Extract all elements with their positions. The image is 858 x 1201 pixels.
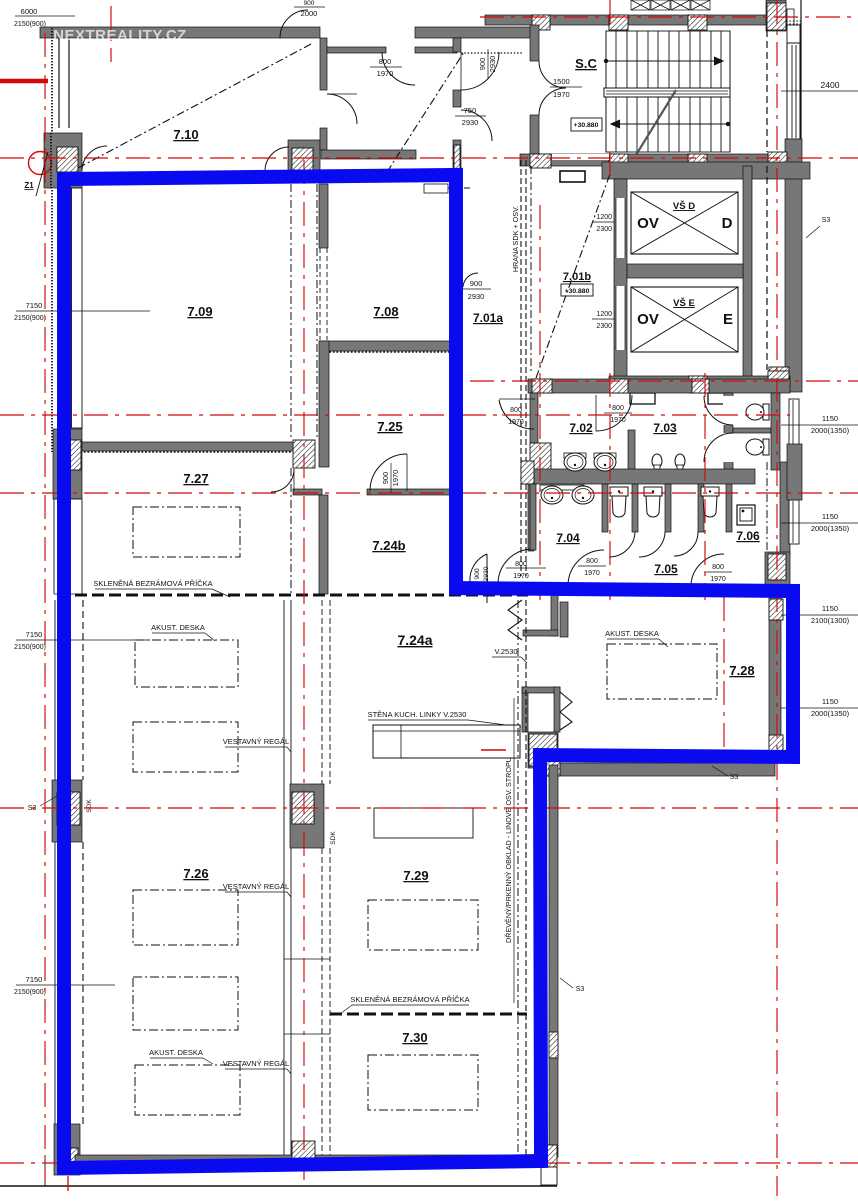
svg-text:800: 800: [712, 564, 724, 571]
svg-text:900: 900: [470, 279, 483, 288]
svg-text:SKLENĚNÁ BEZRÁMOVÁ PŘÍČKA: SKLENĚNÁ BEZRÁMOVÁ PŘÍČKA: [93, 579, 212, 588]
svg-text:+30.880: +30.880: [565, 288, 590, 295]
svg-text:1500: 1500: [553, 77, 570, 86]
svg-text:VŠ E: VŠ E: [673, 297, 695, 309]
svg-text:7.09: 7.09: [187, 304, 212, 319]
svg-text:7.02: 7.02: [569, 421, 593, 435]
svg-text:7.01b: 7.01b: [563, 271, 591, 283]
svg-text:AKUST. DESKA: AKUST. DESKA: [149, 1048, 203, 1057]
svg-text:NEXTREALITY.CZ: NEXTREALITY.CZ: [53, 27, 187, 44]
svg-text:VESTAVNÝ REGÁL: VESTAVNÝ REGÁL: [223, 882, 289, 891]
svg-text:DŘEVĚNÝ/PRKENNÝ OBKLAD - LINOV: DŘEVĚNÝ/PRKENNÝ OBKLAD - LINOVÉ OSV. STR…: [504, 757, 513, 943]
svg-text:7.30: 7.30: [402, 1030, 427, 1045]
svg-text:2930: 2930: [468, 292, 485, 301]
svg-text:6000: 6000: [21, 7, 38, 16]
svg-text:1150: 1150: [822, 512, 838, 521]
svg-text:7.24b: 7.24b: [372, 538, 405, 553]
svg-text:OV: OV: [637, 311, 659, 328]
svg-text:1970: 1970: [391, 470, 400, 487]
svg-text:2930: 2930: [483, 566, 490, 581]
svg-text:7150: 7150: [26, 630, 43, 639]
svg-text:2150(900): 2150(900): [14, 21, 46, 28]
svg-text:1970: 1970: [584, 570, 600, 577]
svg-text:7.04: 7.04: [556, 531, 580, 545]
svg-text:7.26: 7.26: [183, 866, 208, 881]
svg-text:SDK: SDK: [330, 831, 337, 845]
svg-text:1970: 1970: [710, 576, 726, 583]
svg-text:1970: 1970: [377, 69, 394, 78]
svg-text:900: 900: [478, 58, 487, 71]
svg-text:900: 900: [381, 472, 390, 485]
svg-text:S3: S3: [822, 217, 831, 224]
svg-text:VŠ D: VŠ D: [673, 200, 695, 212]
svg-text:7.03: 7.03: [653, 421, 677, 435]
svg-text:7.25: 7.25: [377, 419, 402, 434]
svg-text:7.05: 7.05: [654, 562, 678, 576]
svg-text:Z1: Z1: [24, 181, 34, 190]
svg-text:900: 900: [304, 0, 315, 7]
svg-text:800: 800: [510, 407, 522, 414]
svg-text:2150(900): 2150(900): [14, 989, 46, 996]
svg-text:900: 900: [474, 568, 481, 580]
svg-text:STĚNA KUCH. LINKY V.2530: STĚNA KUCH. LINKY V.2530: [368, 710, 467, 719]
svg-text:7150: 7150: [26, 301, 43, 310]
svg-text:7.28: 7.28: [729, 663, 754, 678]
svg-text:S.C: S.C: [575, 56, 597, 71]
svg-text:1970: 1970: [553, 90, 570, 99]
svg-text:7.24a: 7.24a: [397, 632, 432, 648]
svg-text:800: 800: [586, 558, 598, 565]
svg-text:2300: 2300: [596, 323, 612, 330]
svg-text:1150: 1150: [822, 604, 838, 613]
svg-text:2000(1350): 2000(1350): [811, 426, 850, 435]
svg-text:2000: 2000: [301, 9, 318, 18]
svg-text:AKUST. DESKA: AKUST. DESKA: [151, 623, 205, 632]
svg-text:7.27: 7.27: [183, 471, 208, 486]
svg-text:HRANA SDK + OSV.: HRANA SDK + OSV.: [511, 206, 520, 272]
svg-text:SDK: SDK: [86, 799, 93, 813]
svg-text:E: E: [723, 311, 733, 328]
svg-text:1150: 1150: [822, 697, 838, 706]
svg-text:800: 800: [515, 561, 527, 568]
svg-text:7.08: 7.08: [373, 304, 398, 319]
svg-text:OV: OV: [637, 215, 659, 232]
svg-text:800: 800: [379, 57, 392, 66]
svg-text:V.2530: V.2530: [494, 647, 517, 656]
svg-text:1150: 1150: [822, 414, 838, 423]
svg-text:7.10: 7.10: [173, 127, 198, 142]
svg-text:7.29: 7.29: [403, 868, 428, 883]
svg-text:+30.880: +30.880: [574, 122, 599, 129]
svg-text:VESTAVNÝ REGÁL: VESTAVNÝ REGÁL: [223, 737, 289, 746]
svg-text:1970: 1970: [610, 417, 626, 424]
svg-text:1970: 1970: [513, 573, 529, 580]
svg-text:7.01a: 7.01a: [473, 311, 503, 325]
svg-text:800: 800: [612, 405, 624, 412]
svg-text:2100(1300): 2100(1300): [811, 616, 850, 625]
svg-text:1200: 1200: [596, 214, 612, 221]
svg-text:7150: 7150: [26, 975, 43, 984]
svg-text:2000(1350): 2000(1350): [811, 709, 850, 718]
svg-text:S3: S3: [576, 986, 585, 993]
svg-text:750: 750: [464, 106, 477, 115]
svg-text:2000(1350): 2000(1350): [811, 524, 850, 533]
svg-text:VESTAVNÝ REGÁL: VESTAVNÝ REGÁL: [223, 1059, 289, 1068]
svg-text:2930: 2930: [462, 118, 479, 127]
svg-text:2930: 2930: [488, 56, 497, 73]
svg-text:2400: 2400: [821, 80, 840, 90]
svg-text:D: D: [722, 215, 733, 232]
svg-text:7.06: 7.06: [736, 529, 760, 543]
svg-text:2300: 2300: [596, 226, 612, 233]
svg-text:SKLENĚNÁ BEZRÁMOVÁ PŘÍČKA: SKLENĚNÁ BEZRÁMOVÁ PŘÍČKA: [350, 995, 469, 1004]
svg-text:1200: 1200: [596, 311, 612, 318]
svg-text:2150(900): 2150(900): [14, 315, 46, 322]
svg-text:S3: S3: [730, 774, 739, 781]
svg-text:2150(900): 2150(900): [14, 644, 46, 651]
svg-text:AKUST. DESKA: AKUST. DESKA: [605, 629, 659, 638]
svg-text:1970: 1970: [508, 419, 524, 426]
